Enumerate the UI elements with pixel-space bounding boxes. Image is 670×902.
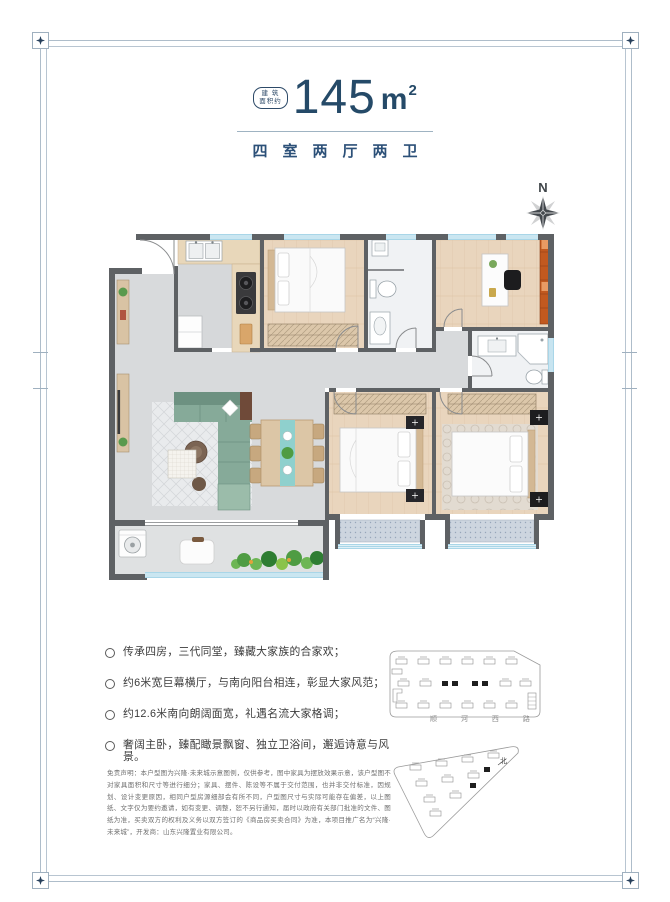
title-divider bbox=[237, 131, 433, 132]
bullet-circle-icon bbox=[105, 741, 115, 751]
area-value: 145 bbox=[293, 74, 376, 122]
area-badge: 建 筑 面积约 bbox=[253, 87, 288, 109]
bedroom-top bbox=[268, 248, 358, 346]
bullet-circle-icon bbox=[105, 710, 115, 720]
dining-area bbox=[250, 420, 324, 486]
feature-item: 约12.6米南向朗阔面宽，礼遇名流大家格调； bbox=[105, 709, 410, 721]
frame-tick bbox=[33, 388, 48, 389]
feature-text: 约6米宽巨幕横厅，与南向阳台相连，彰显大家风范； bbox=[123, 678, 385, 690]
frame-corner-ornament bbox=[622, 872, 639, 889]
site-plan-upper bbox=[390, 651, 540, 717]
frame-corner-ornament bbox=[32, 872, 49, 889]
four-point-star-icon bbox=[626, 36, 635, 45]
area-unit-sup: 2 bbox=[408, 82, 416, 99]
floor-plan bbox=[104, 226, 556, 584]
frame-tick bbox=[622, 388, 637, 389]
feature-text: 约12.6米南向朗阔面宽，礼遇名流大家格调； bbox=[123, 709, 345, 721]
four-point-star-icon bbox=[36, 876, 45, 885]
site-plan: 北 bbox=[388, 645, 556, 850]
floorplan-page: 建 筑 面积约 145 m2 四室两厅两卫 N bbox=[0, 0, 670, 902]
area-badge-line1: 建 筑 bbox=[262, 90, 280, 98]
feature-item: 奢阔主卧，臻配瞰景飘窗、独立卫浴间，邂逅诗意与风景。 bbox=[105, 740, 410, 764]
four-point-star-icon bbox=[626, 876, 635, 885]
compass-north-label: N bbox=[524, 180, 562, 195]
frame-corner-ornament bbox=[32, 32, 49, 49]
frame-tick bbox=[622, 352, 637, 353]
feature-list: 传承四房，三代同堂，臻藏大家族的合家欢； 约6米宽巨幕横厅，与南向阳台相连，彰显… bbox=[105, 647, 410, 782]
area-unit: m bbox=[381, 83, 408, 116]
bullet-circle-icon bbox=[105, 679, 115, 689]
feature-text: 传承四房，三代同堂，臻藏大家族的合家欢； bbox=[123, 647, 345, 659]
disclaimer-text: 免责声明：本户型图为兴隆·未来城示意图例，仅供参考，图中家具为摆放效果示意，该户… bbox=[107, 768, 391, 839]
area-title: 建 筑 面积约 145 m2 bbox=[0, 74, 670, 122]
area-badge-line2: 面积约 bbox=[259, 98, 282, 106]
bedroom-middle bbox=[334, 394, 426, 502]
frame-tick bbox=[33, 352, 48, 353]
feature-item: 约6米宽巨幕横厅，与南向阳台相连，彰显大家风范； bbox=[105, 678, 410, 690]
master-bedroom bbox=[442, 394, 548, 510]
feature-item: 传承四房，三代同堂，臻藏大家族的合家欢； bbox=[105, 647, 410, 659]
road-label: 顺 河 西 路 bbox=[428, 714, 558, 724]
bay-windows bbox=[340, 520, 534, 542]
layout-title: 四室两厅两卫 bbox=[0, 140, 670, 161]
feature-text: 奢阔主卧，臻配瞰景飘窗、独立卫浴间，邂逅诗意与风景。 bbox=[123, 740, 410, 764]
four-point-star-icon bbox=[36, 36, 45, 45]
site-plan-lower: 北 bbox=[394, 747, 518, 838]
bullet-circle-icon bbox=[105, 648, 115, 658]
balcony-slider bbox=[145, 523, 298, 526]
frame-corner-ornament bbox=[622, 32, 639, 49]
